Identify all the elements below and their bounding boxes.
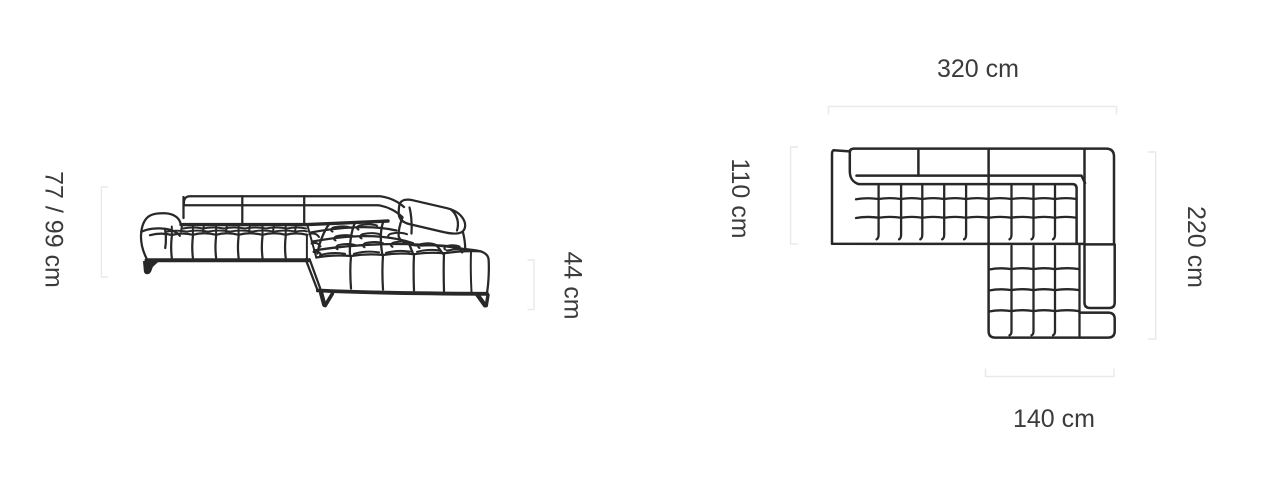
svg-text:220 cm: 220 cm: [1182, 206, 1210, 288]
svg-text:44 cm: 44 cm: [559, 251, 587, 319]
svg-text:110 cm: 110 cm: [726, 158, 754, 238]
svg-text:320 cm: 320 cm: [937, 55, 1019, 83]
svg-text:77 / 99 cm: 77 / 99 cm: [40, 171, 68, 288]
svg-text:140 cm: 140 cm: [1013, 405, 1095, 433]
